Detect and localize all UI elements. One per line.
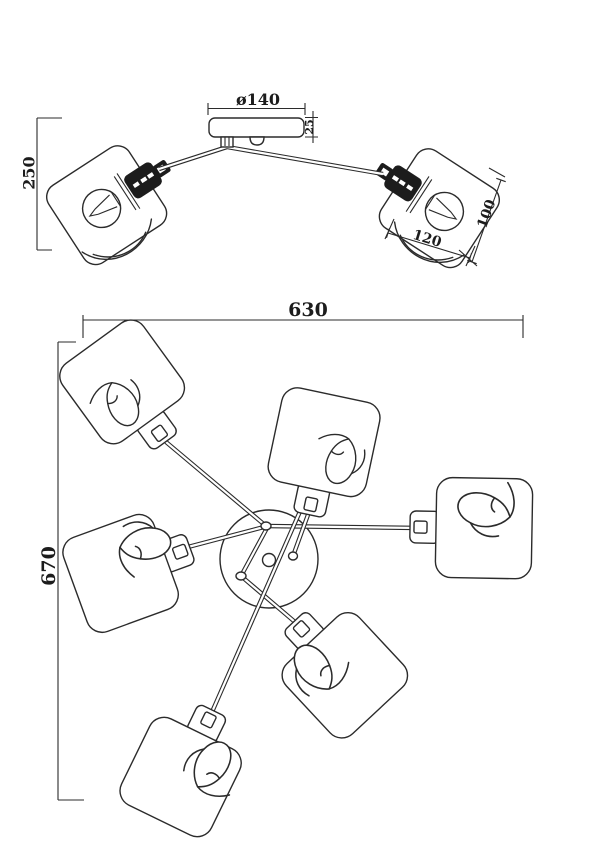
arm-top-left	[166, 442, 266, 526]
side-canopy	[209, 118, 304, 147]
shade-top-center	[260, 385, 383, 525]
technical-drawing-page: ø140 25 250 100 120	[0, 0, 600, 849]
top-view: 630 670	[38, 299, 533, 842]
side-left-shade	[41, 127, 196, 275]
side-view: ø140 25 250 100 120	[20, 90, 506, 278]
dim-label-overall-width: 630	[288, 299, 328, 321]
dim-label-canopy-diameter: ø140	[236, 90, 280, 109]
shade-top-left	[53, 314, 206, 471]
arm-right	[266, 526, 420, 528]
plate-screw	[263, 554, 276, 567]
shade-left	[58, 501, 207, 637]
dim-label-canopy-height: 25	[303, 119, 316, 134]
canopy-screw-bump	[250, 137, 264, 145]
shade-right	[409, 475, 533, 579]
canopy-stem	[221, 137, 233, 147]
dimension-canopy-height: 25	[303, 111, 318, 143]
shade-bottom-left	[115, 689, 258, 842]
dim-label-overall-depth: 670	[38, 546, 60, 586]
dim-label-fixture-height: 250	[20, 156, 39, 189]
dimension-canopy-diameter: ø140	[208, 90, 305, 115]
dimension-overall-width: 630	[83, 299, 523, 338]
lamp-dimension-drawing: ø140 25 250 100 120	[0, 0, 600, 849]
side-arm	[159, 147, 383, 174]
